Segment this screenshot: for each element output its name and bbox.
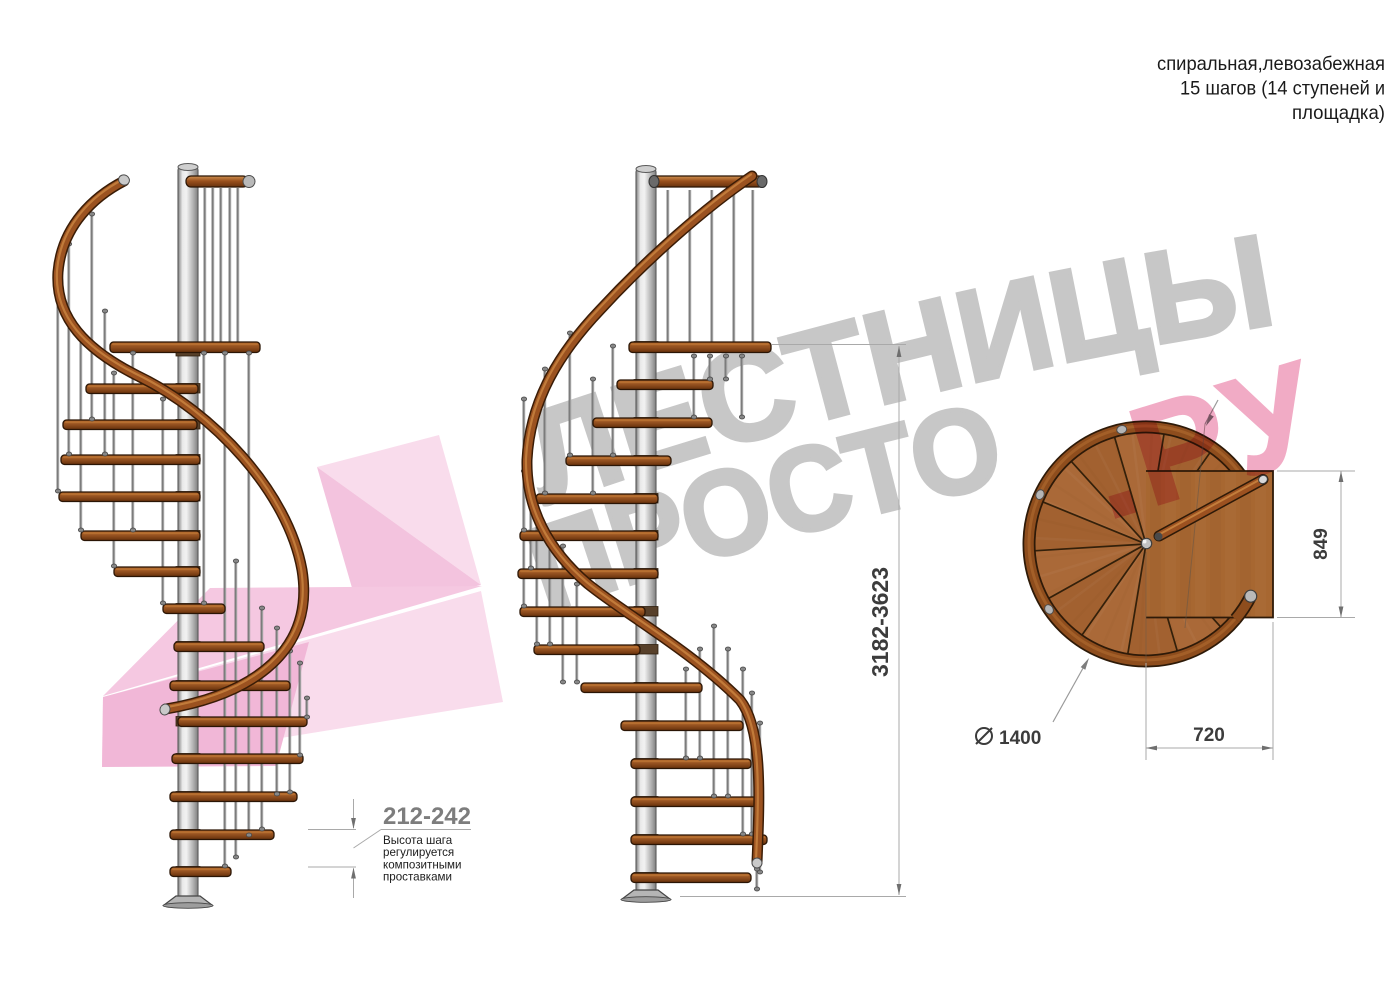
svg-text:площадка): площадка) (1292, 102, 1385, 124)
svg-text:Высота шага: Высота шага (383, 834, 453, 847)
svg-text:спиральная,левозабежная: спиральная,левозабежная (1157, 53, 1385, 75)
svg-text:3182-3623: 3182-3623 (867, 567, 893, 677)
svg-text:212-242: 212-242 (383, 803, 471, 830)
svg-text:проставками: проставками (383, 871, 452, 884)
svg-text:720: 720 (1193, 725, 1225, 746)
svg-text:15 шагов (14 ступеней и: 15 шагов (14 ступеней и (1180, 78, 1385, 100)
svg-text:композитными: композитными (383, 858, 462, 871)
svg-text:849: 849 (1311, 528, 1332, 560)
svg-text:регулируется: регулируется (383, 846, 454, 859)
svg-text:1400: 1400 (999, 728, 1041, 749)
